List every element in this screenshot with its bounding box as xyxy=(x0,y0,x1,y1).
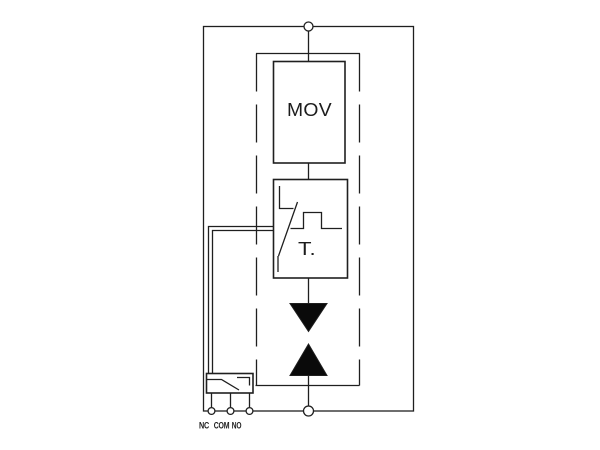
terminal-wires xyxy=(212,393,250,407)
terminal-nc-circle xyxy=(208,408,215,415)
thermal-label: T. xyxy=(298,239,316,259)
terminal-com-label: COM xyxy=(214,421,230,431)
mov-label: MOV xyxy=(287,100,332,120)
diagram-lines xyxy=(204,22,414,416)
terminal-nc-label: NC xyxy=(199,421,210,431)
terminal-com-circle xyxy=(227,408,234,415)
remote-contact-box xyxy=(207,374,254,394)
signal-wire-pair xyxy=(209,227,274,374)
changeover-contact-symbol xyxy=(207,378,250,391)
arrester-triangles xyxy=(290,304,327,376)
line-terminal-top-circle xyxy=(304,22,313,31)
thermal-disconnect-symbol xyxy=(278,186,342,272)
line-terminal-bottom-circle xyxy=(304,406,314,416)
terminal-no-circle xyxy=(246,408,253,415)
spd-circuit-diagram: MOV T. NC COM NO xyxy=(0,0,600,450)
spd-schematic-page: MOV T. NC COM NO xyxy=(0,0,600,450)
terminal-no-label: NO xyxy=(232,421,242,431)
